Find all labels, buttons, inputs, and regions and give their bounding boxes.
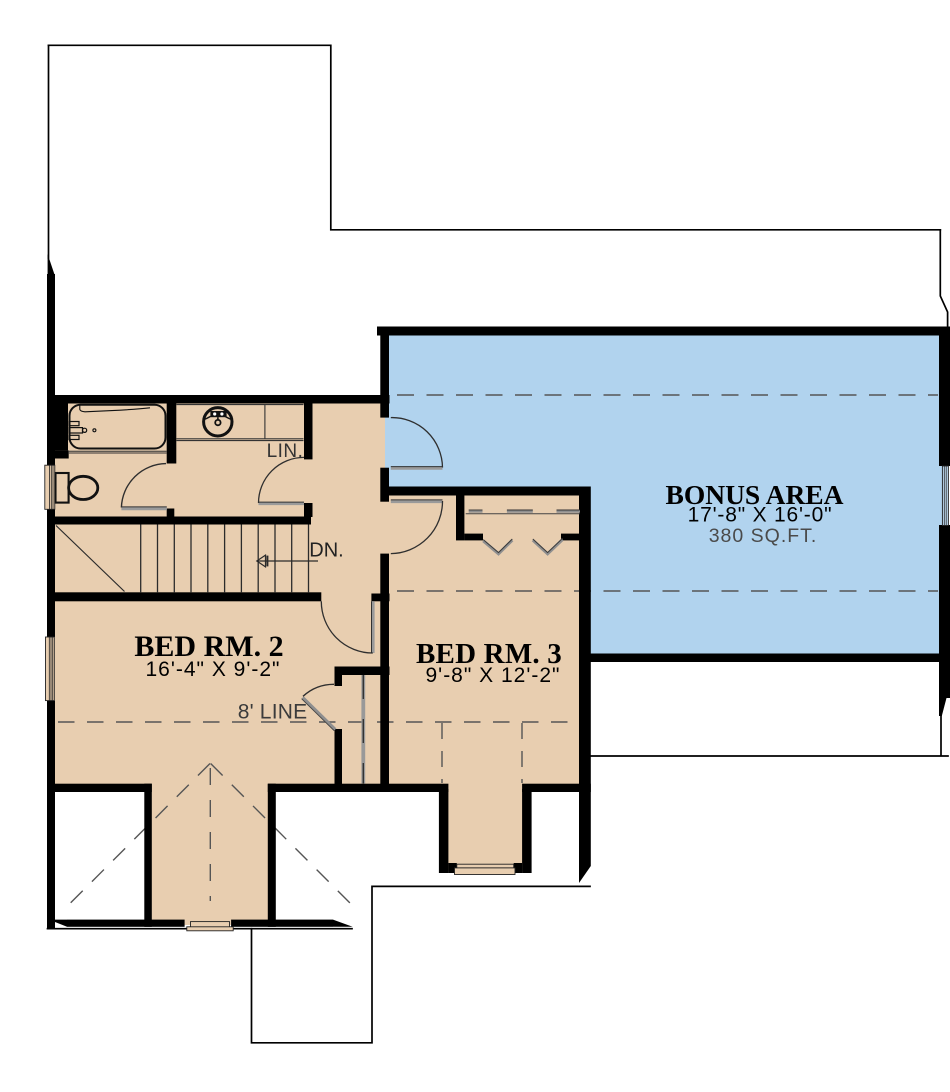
svg-text:16'-4" X 9'-2": 16'-4" X 9'-2" bbox=[146, 658, 281, 681]
svg-text:8' LINE: 8' LINE bbox=[238, 701, 308, 724]
svg-text:9'-8" X 12'-2": 9'-8" X 12'-2" bbox=[426, 664, 561, 687]
svg-text:17'-8" X 16'-0": 17'-8" X 16'-0" bbox=[688, 504, 833, 527]
svg-text:380 SQ.FT.: 380 SQ.FT. bbox=[709, 525, 818, 547]
svg-text:LIN.: LIN. bbox=[267, 441, 304, 462]
svg-text:DN.: DN. bbox=[309, 540, 343, 562]
